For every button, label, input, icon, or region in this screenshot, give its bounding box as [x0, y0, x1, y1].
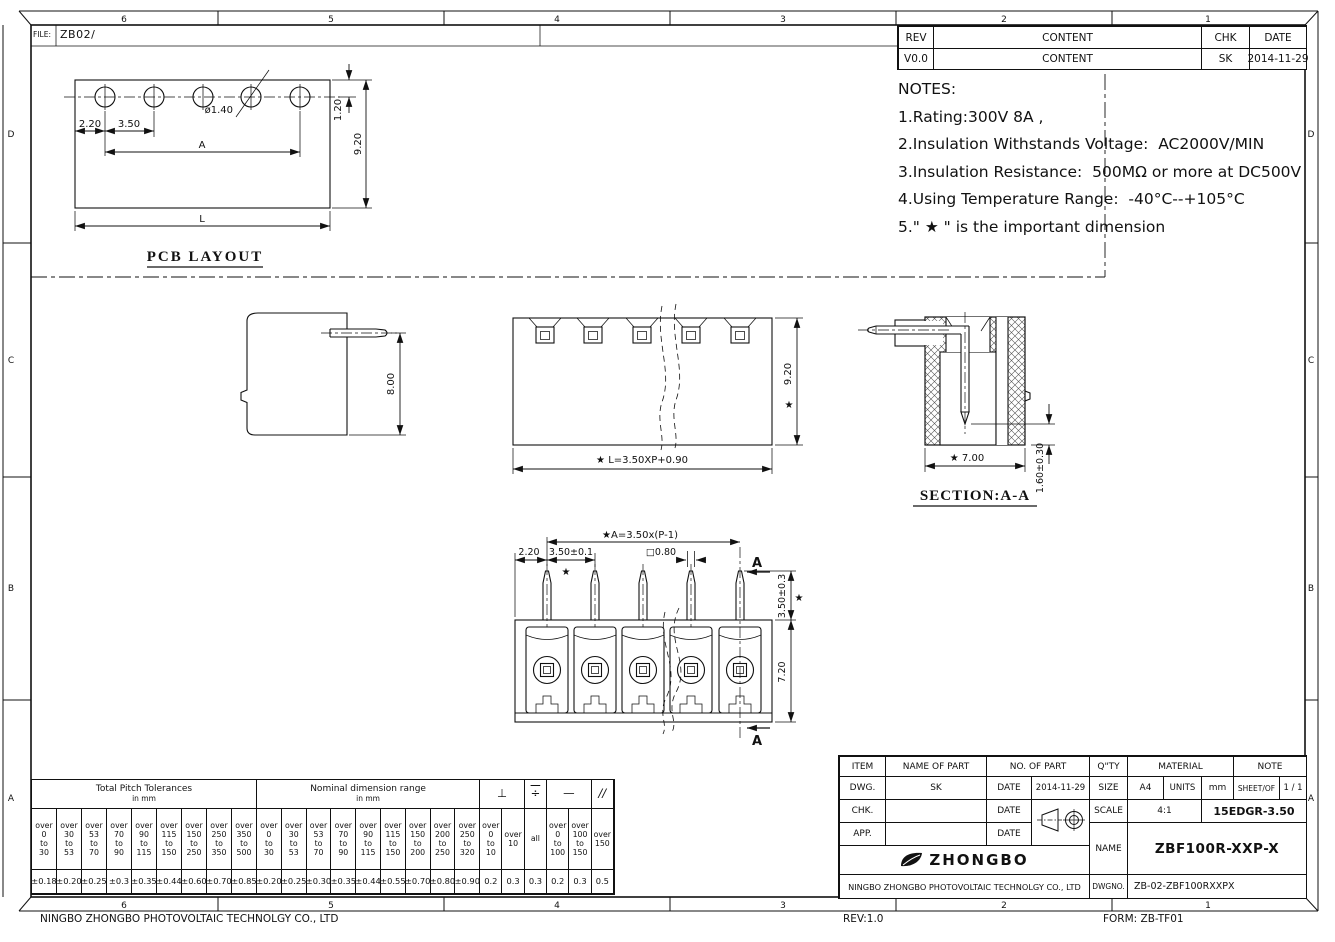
dim-2-20: 2.20 [518, 547, 539, 558]
scale-value: 4:1 [1127, 799, 1201, 822]
zone-bottom: 4 [554, 901, 560, 911]
tolerance-value: ±0.35 [132, 870, 157, 894]
note-line: 1.Rating:300V 8A , [898, 104, 1318, 132]
range-cell: over53to70 [82, 809, 107, 870]
drawing-sheet: 6 5 4 3 2 1 6 5 4 3 2 1 D C B A D C B A [0, 0, 1335, 942]
projection-symbol-cell [1031, 799, 1089, 845]
units-value: mm [1201, 776, 1233, 799]
top-view-drawing: A A ★A=3.50x(P-1) 2.20 3.50±0.1 ★ □0.80 … [515, 530, 804, 749]
zone-top: 3 [780, 15, 786, 25]
part-name-value: ZBF100R-XXP-X [1127, 822, 1306, 874]
notes-block: NOTES: 1.Rating:300V 8A , 2.Insulation W… [898, 76, 1318, 241]
date-label: DATE [986, 776, 1031, 799]
dwg-date: 2014-11-29 [1031, 776, 1089, 799]
tolerance-value: ±0.25 [82, 870, 107, 894]
dim-2-20: 2.20 [79, 119, 101, 130]
pcb-layout-drawing: 2.20 3.50 A ø1.40 1.20 9.20 L PCB LAYOUT [64, 64, 372, 267]
range-cell: over115to150 [157, 809, 182, 870]
zone-bottom: 3 [780, 901, 786, 911]
important-dim-star: ★ [795, 593, 804, 604]
section-view-drawing: ★ 7.00 1.60±0.30 SECTION:A-A [858, 312, 1055, 506]
date-value: 2014-11-29 [1249, 48, 1306, 69]
dim-9-20: 9.20 [353, 133, 364, 155]
front-view-drawing: 9.20 ★ ★ L=3.50XP+0.90 [513, 304, 803, 474]
tolerance-value: ±0.44 [157, 870, 182, 894]
units-label: UNITS [1163, 776, 1201, 799]
range-cell: over0to10 [480, 809, 502, 870]
tolerance-value: 0.3 [502, 870, 524, 894]
dim-9-20: 9.20 [783, 363, 794, 385]
rev-value: V0.0 [898, 48, 933, 69]
date-label: DATE [986, 799, 1031, 822]
dim-7-00: ★ 7.00 [950, 453, 984, 464]
name-of-part-header: NAME OF PART [885, 756, 986, 776]
date-col-header: DATE [1249, 26, 1306, 48]
zone-left: B [8, 584, 14, 594]
range-cell: over30to53 [282, 809, 307, 870]
tolerance-value: 0.5 [592, 870, 614, 894]
geo-symbol-straightness: — [547, 780, 592, 809]
important-dim-star: ★ [785, 400, 794, 411]
material-header: MATERIAL [1127, 756, 1233, 776]
note-line: 5." ★ " is the important dimension [898, 214, 1318, 242]
file-value: ZB02/ [60, 28, 95, 41]
zone-top: 1 [1205, 15, 1211, 25]
dim-3-50: 3.50 [118, 119, 140, 130]
footer-form-number: FORM: ZB-TF01 [1103, 913, 1184, 925]
dim-pin-height: 3.50±0.3 [777, 574, 788, 618]
tolerance-value: ±0.70 [207, 870, 232, 894]
range-cell: over70to90 [331, 809, 356, 870]
third-angle-projection-icon [1035, 804, 1087, 842]
tolerance-value: ±0.85 [232, 870, 257, 894]
zone-top: 2 [1001, 15, 1007, 25]
range-cell: over90to115 [356, 809, 381, 870]
tolerance-value: ±0.30 [307, 870, 332, 894]
rev-col-header: REV [898, 26, 933, 48]
zone-bottom: 6 [121, 901, 127, 911]
size-label: SIZE [1089, 776, 1127, 799]
scale-label: SCALE [1089, 799, 1127, 822]
side-view-drawing: 8.00 [241, 313, 406, 435]
tolerance-value: ±0.20 [257, 870, 282, 894]
range-cell: over70to90 [107, 809, 132, 870]
notes-title: NOTES: [898, 76, 1318, 104]
tolerance-value: ±0.20 [57, 870, 82, 894]
size-value: A4 [1127, 776, 1163, 799]
tolerance-value: 0.2 [547, 870, 569, 894]
section-mark-bottom: A [752, 734, 762, 749]
chk-col-header: CHK [1201, 26, 1249, 48]
geo-symbol-parallelism: // [592, 780, 614, 809]
footer-company: NINGBO ZHONGBO PHOTOVOLTAIC TECHNOLGY CO… [40, 913, 338, 925]
zone-top: 6 [121, 15, 127, 25]
zone-top: 5 [328, 15, 334, 25]
note-line: 2.Insulation Withstands Voltage: AC2000V… [898, 131, 1318, 159]
logo-cell: ZHONGBO [839, 845, 1089, 874]
sheet-value: 1 / 1 [1279, 776, 1306, 799]
note-line: 3.Insulation Resistance: 500MΩ or more a… [898, 159, 1318, 187]
qty-header: Q"TY [1089, 756, 1127, 776]
geo-symbol-symmetry: ÷ [525, 780, 547, 809]
pitch-tolerance-header: Total Pitch Tolerancesin mm [32, 780, 257, 809]
tolerance-value: ±0.25 [282, 870, 307, 894]
range-cell: over90to115 [132, 809, 157, 870]
zhongbo-leaf-logo-icon [900, 851, 924, 869]
chk-label: CHK. [839, 799, 885, 822]
range-cell: over350to500 [232, 809, 257, 870]
title-block: ITEM NAME OF PART NO. OF PART Q"TY MATER… [838, 755, 1307, 899]
file-label: FILE: [33, 30, 51, 39]
tolerance-value: ±0.55 [381, 870, 406, 894]
chk-value: SK [1201, 48, 1249, 69]
range-cell: over115to150 [381, 809, 406, 870]
item-header: ITEM [839, 756, 885, 776]
app-name [885, 822, 986, 845]
zone-top: 4 [554, 15, 560, 25]
range-cell: over0to100 [547, 809, 569, 870]
section-title: SECTION:A-A [920, 488, 1030, 504]
tolerance-value: ±0.70 [406, 870, 431, 894]
zone-bottom: 5 [328, 901, 334, 911]
range-cell: over53to70 [307, 809, 332, 870]
zone-left: A [8, 794, 15, 804]
name-label: NAME [1089, 822, 1127, 874]
range-cell: over30to53 [57, 809, 82, 870]
tolerance-value: ±0.90 [455, 870, 480, 894]
dim-hole-dia: ø1.40 [205, 105, 233, 116]
range-cell: over10 [502, 809, 524, 870]
dwg-name: SK [885, 776, 986, 799]
tolerance-value: 0.3 [525, 870, 547, 894]
dwg-label: DWG. [839, 776, 885, 799]
app-label: APP. [839, 822, 885, 845]
geo-symbol-perpendicularity: ⊥ [480, 780, 525, 809]
range-cell: over150to250 [182, 809, 207, 870]
zone-bottom: 1 [1205, 901, 1211, 911]
range-cell: over250to350 [207, 809, 232, 870]
important-dim-star: ★ [562, 567, 571, 578]
tolerance-table: Total Pitch Tolerancesin mmNominal dimen… [31, 779, 615, 895]
dim-a: A [199, 140, 206, 151]
tolerance-value: 0.3 [569, 870, 591, 894]
range-cell: over150 [592, 809, 614, 870]
dim-3-50-pitch: 3.50±0.1 [549, 547, 593, 558]
dwgno-value: ZB-02-ZBF100RXXPX [1127, 874, 1306, 898]
nominal-range-header: Nominal dimension rangein mm [257, 780, 480, 809]
note-header: NOTE [1233, 756, 1306, 776]
dwgno-label: DWGNO. [1089, 874, 1127, 898]
dim-7-20: 7.20 [777, 661, 788, 682]
tolerance-value: ±0.44 [356, 870, 381, 894]
section-mark-top: A [752, 556, 762, 571]
dim-8-00: 8.00 [386, 373, 397, 395]
content-col-header: CONTENT [933, 26, 1201, 48]
date-label: DATE [986, 822, 1031, 845]
range-cell: over100to150 [569, 809, 591, 870]
logo-text: ZHONGBO [929, 851, 1028, 869]
range-cell: over0to30 [257, 809, 282, 870]
tolerance-value: ±0.3 [107, 870, 132, 894]
range-cell: over250to320 [455, 809, 480, 870]
no-of-part-header: NO. OF PART [986, 756, 1089, 776]
company-name: NINGBO ZHONGBO PHOTOVOLTAIC TECHNOLGY CO… [839, 874, 1089, 898]
footer-revision: REV:1.0 [843, 913, 884, 925]
dim-length-formula: ★ L=3.50XP+0.90 [596, 455, 688, 466]
zone-right: A [1308, 794, 1315, 804]
series-value: 15EDGR-3.50 [1201, 799, 1306, 822]
dim-1-20: 1.20 [333, 99, 344, 121]
range-cell: over200to250 [431, 809, 456, 870]
dim-1-60: 1.60±0.30 [1035, 443, 1046, 493]
revision-table: REV CONTENT CHK DATE V0.0 CONTENT SK 201… [897, 25, 1307, 70]
note-line: 4.Using Temperature Range: -40°C--+105°C [898, 186, 1318, 214]
pcb-layout-title: PCB LAYOUT [147, 249, 264, 265]
zone-right: C [1308, 356, 1314, 366]
tolerance-value: ±0.80 [431, 870, 456, 894]
range-cell: all [525, 809, 547, 870]
dim-pitch-formula: ★A=3.50x(P-1) [602, 530, 678, 541]
zone-bottom: 2 [1001, 901, 1007, 911]
range-cell: over0to30 [32, 809, 57, 870]
tolerance-value: ±0.18 [32, 870, 57, 894]
content-value: CONTENT [933, 48, 1201, 69]
tolerance-value: 0.2 [480, 870, 502, 894]
tolerance-value: ±0.60 [182, 870, 207, 894]
range-cell: over150to200 [406, 809, 431, 870]
dim-l: L [199, 214, 205, 225]
zone-right: B [1308, 584, 1314, 594]
zone-left: C [8, 356, 14, 366]
zone-left: D [8, 130, 15, 140]
dim-pin-square: □0.80 [646, 547, 676, 558]
chk-name [885, 799, 986, 822]
tolerance-value: ±0.35 [331, 870, 356, 894]
sheet-label: SHEET/OF [1233, 776, 1279, 799]
